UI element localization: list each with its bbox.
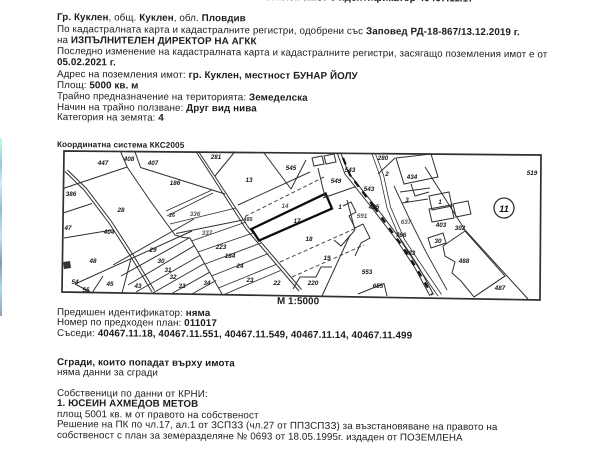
svg-text:281: 281	[210, 154, 222, 161]
svg-text:19: 19	[323, 255, 331, 262]
svg-text:485: 485	[242, 217, 253, 223]
svg-text:34: 34	[203, 280, 211, 287]
svg-text:28: 28	[116, 207, 125, 214]
svg-text:22: 22	[272, 280, 281, 287]
svg-text:32: 32	[169, 274, 177, 281]
svg-text:543: 543	[364, 186, 375, 193]
svg-text:337: 337	[202, 230, 213, 237]
svg-text:48: 48	[88, 258, 97, 265]
svg-text:591: 591	[357, 213, 368, 220]
svg-text:386: 386	[66, 191, 77, 198]
svg-text:54: 54	[71, 279, 79, 286]
svg-text:24: 24	[235, 263, 244, 270]
svg-text:223: 223	[215, 244, 227, 251]
svg-text:519: 519	[527, 170, 538, 177]
svg-text:483: 483	[404, 250, 416, 257]
svg-text:55: 55	[82, 287, 90, 294]
svg-text:404: 404	[103, 229, 115, 236]
svg-text:1: 1	[338, 204, 342, 211]
svg-text:220: 220	[307, 280, 319, 287]
svg-text:13: 13	[245, 177, 253, 184]
svg-text:30: 30	[434, 238, 442, 245]
svg-text:47: 47	[63, 225, 72, 232]
svg-text:403: 403	[435, 222, 447, 229]
svg-text:637: 637	[401, 219, 412, 226]
svg-text:766: 766	[396, 232, 407, 239]
svg-text:30: 30	[157, 258, 165, 265]
svg-text:447: 447	[97, 160, 109, 167]
svg-text:280: 280	[377, 155, 389, 162]
svg-text:545: 545	[286, 165, 297, 172]
svg-text:553: 553	[362, 269, 373, 276]
svg-text:485: 485	[368, 204, 380, 211]
svg-text:184: 184	[225, 253, 236, 260]
svg-text:29: 29	[148, 247, 157, 254]
svg-text:3: 3	[405, 197, 409, 204]
svg-text:33: 33	[178, 283, 186, 290]
svg-text:43: 43	[133, 283, 142, 290]
svg-text:434: 434	[406, 174, 418, 181]
svg-text:26: 26	[168, 213, 176, 219]
svg-text:18: 18	[305, 236, 313, 243]
svg-text:488: 488	[458, 258, 470, 265]
svg-text:487: 487	[494, 285, 506, 292]
svg-text:543: 543	[345, 167, 356, 174]
svg-text:1: 1	[438, 199, 442, 206]
svg-text:14: 14	[281, 203, 289, 210]
svg-text:186: 186	[170, 180, 181, 187]
svg-text:23: 23	[245, 277, 254, 284]
svg-text:302: 302	[455, 225, 466, 232]
svg-text:31: 31	[164, 267, 172, 274]
svg-text:655: 655	[373, 283, 384, 290]
svg-text:17: 17	[293, 218, 301, 225]
svg-text:11: 11	[499, 204, 509, 215]
svg-text:407: 407	[147, 160, 159, 167]
svg-text:336: 336	[190, 211, 201, 218]
svg-text:2: 2	[384, 171, 389, 178]
svg-text:45: 45	[105, 281, 114, 288]
svg-text:408: 408	[123, 156, 135, 163]
svg-text:549: 549	[331, 178, 342, 185]
